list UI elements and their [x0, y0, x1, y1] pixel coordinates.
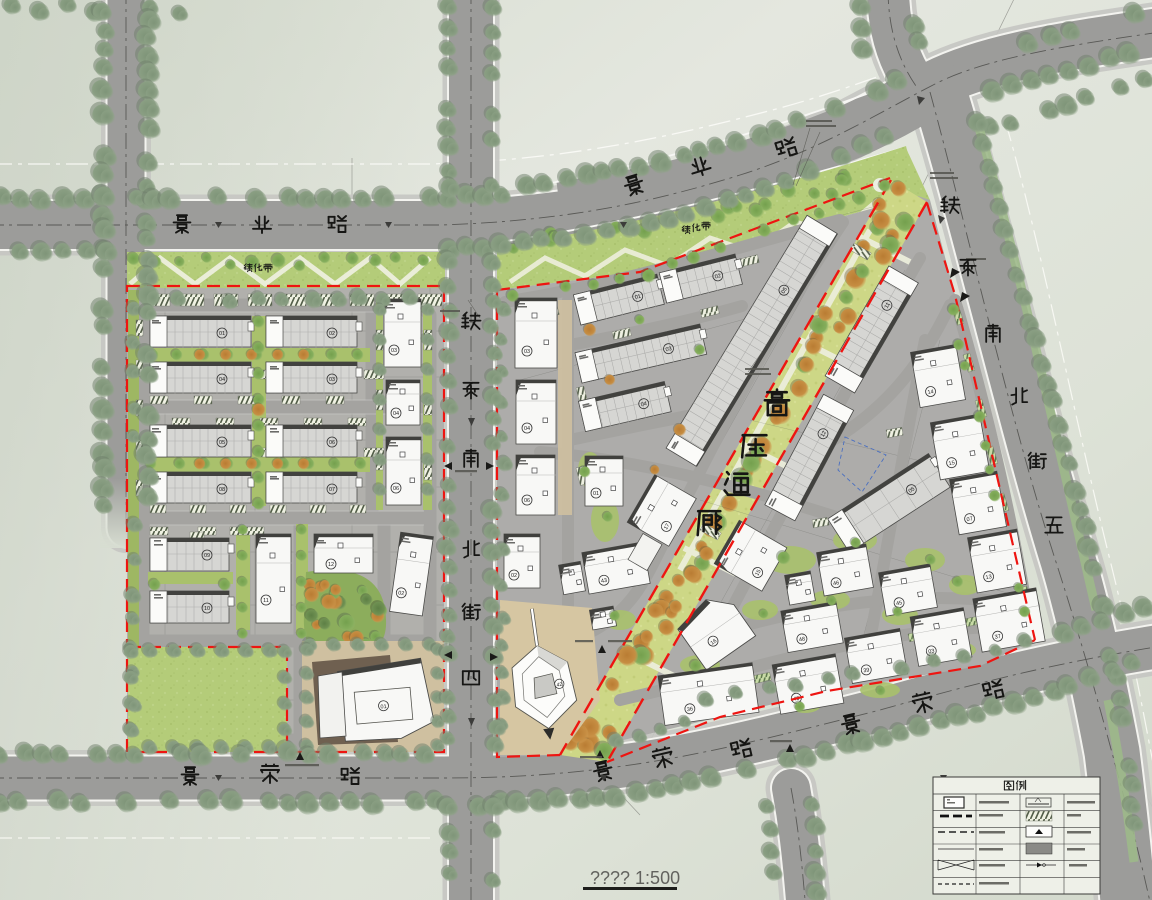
svg-text:37: 37 [994, 634, 1001, 641]
svg-text:14: 14 [927, 389, 934, 396]
svg-text:02: 02 [398, 590, 405, 597]
svg-text:10: 10 [204, 606, 210, 612]
svg-text:06: 06 [329, 440, 335, 446]
svg-text:06: 06 [393, 486, 399, 492]
svg-text:13: 13 [985, 574, 992, 581]
svg-text:15: 15 [948, 460, 955, 467]
svg-text:01: 01 [219, 331, 225, 337]
svg-text:01: 01 [593, 491, 599, 497]
svg-text:03: 03 [524, 349, 530, 355]
svg-text:06: 06 [524, 498, 530, 504]
svg-text:03: 03 [329, 377, 335, 383]
svg-text:43: 43 [601, 578, 608, 585]
svg-text:36: 36 [687, 706, 694, 713]
svg-text:07: 07 [329, 487, 335, 493]
svg-text:39: 39 [863, 667, 870, 674]
svg-text:03: 03 [391, 348, 397, 354]
svg-text:09: 09 [204, 553, 210, 559]
svg-text:11: 11 [263, 598, 269, 604]
svg-text:12: 12 [328, 562, 334, 568]
svg-text:01: 01 [380, 704, 387, 711]
svg-text:46: 46 [833, 580, 840, 587]
svg-text:02: 02 [329, 331, 335, 337]
svg-text:42: 42 [556, 682, 563, 689]
svg-text:07: 07 [966, 516, 973, 523]
svg-text:48: 48 [799, 636, 806, 643]
svg-text:04: 04 [219, 377, 225, 383]
svg-text:05: 05 [219, 440, 225, 446]
svg-text:08: 08 [219, 487, 225, 493]
svg-text:04: 04 [524, 426, 530, 432]
svg-text:04: 04 [393, 411, 399, 417]
svg-text:02: 02 [511, 573, 517, 579]
svg-text:???? 1:500: ???? 1:500 [590, 868, 680, 888]
